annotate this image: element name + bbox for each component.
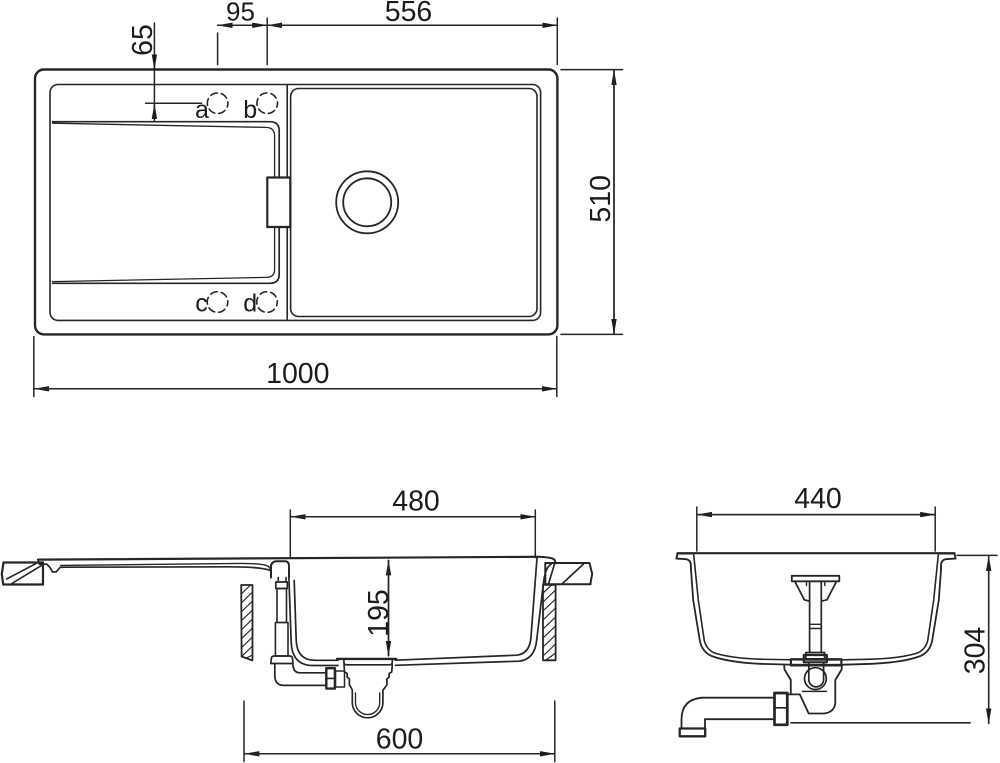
svg-text:556: 556 [385, 0, 433, 28]
svg-text:95: 95 [226, 0, 255, 27]
svg-text:d: d [243, 290, 257, 318]
svg-text:a: a [195, 96, 209, 124]
svg-text:1000: 1000 [266, 358, 329, 390]
svg-text:65: 65 [127, 24, 159, 56]
svg-text:304: 304 [960, 627, 992, 675]
svg-text:c: c [195, 290, 208, 318]
svg-text:600: 600 [376, 724, 424, 756]
svg-text:440: 440 [794, 483, 842, 515]
svg-text:510: 510 [585, 175, 617, 223]
svg-text:480: 480 [392, 486, 440, 518]
svg-text:195: 195 [363, 589, 395, 637]
svg-text:b: b [243, 96, 257, 124]
